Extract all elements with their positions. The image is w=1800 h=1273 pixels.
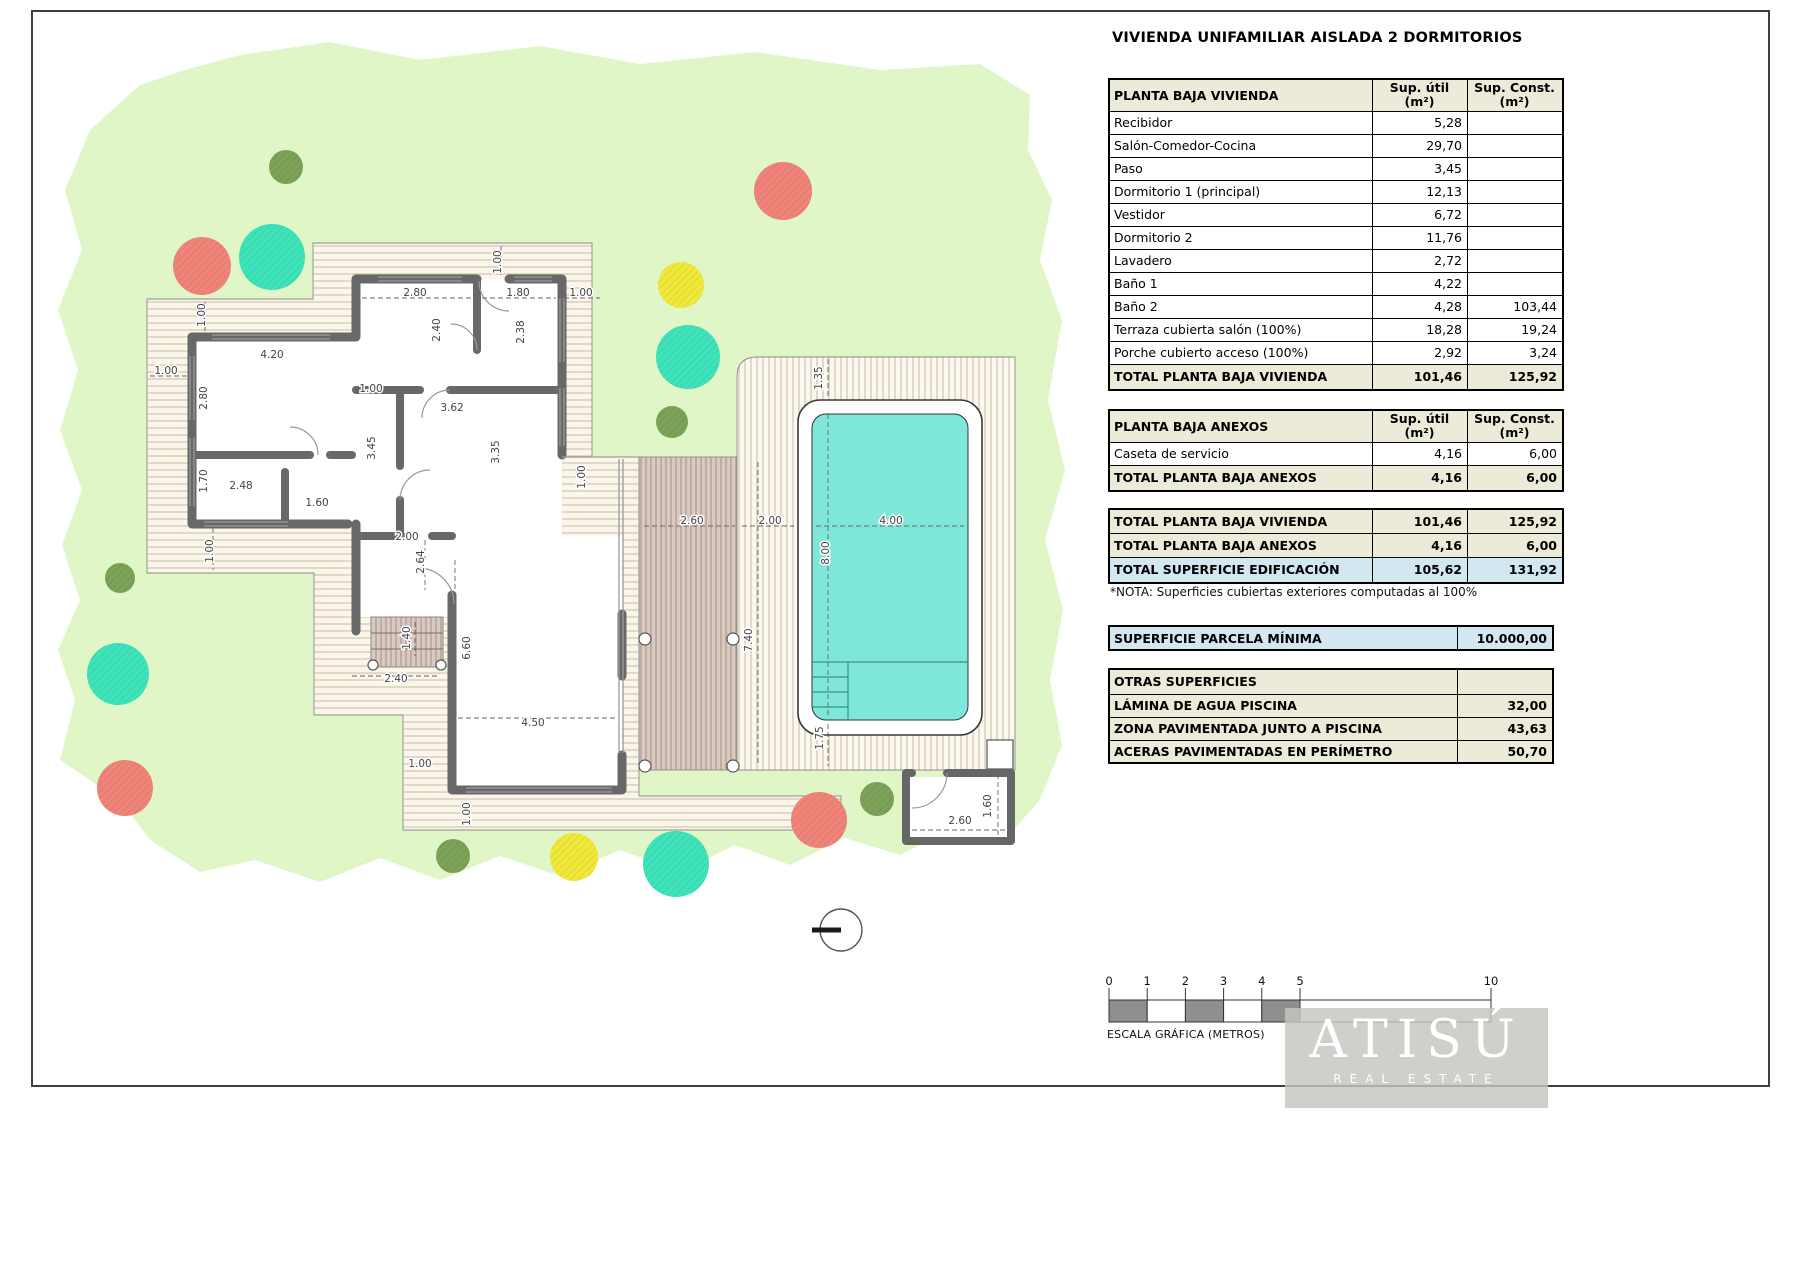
table-row: TOTAL PLANTA BAJA VIVIENDA101,46125,92 bbox=[1109, 509, 1563, 533]
table-cell: 50,70 bbox=[1458, 740, 1554, 763]
table-row: TOTAL SUPERFICIE EDIFICACIÓN105,62131,92 bbox=[1109, 557, 1563, 583]
table-planta-baja-vivienda: PLANTA BAJA VIVIENDASup. útil(m²)Sup. Co… bbox=[1108, 78, 1564, 391]
table-cell bbox=[1468, 249, 1564, 272]
table-cell: 4,16 bbox=[1373, 442, 1468, 465]
table-cell bbox=[1468, 111, 1564, 134]
table-cell: 131,92 bbox=[1468, 557, 1564, 583]
table-cell: SUPERFICIE PARCELA MÍNIMA bbox=[1109, 626, 1458, 650]
table-cell: 10.000,00 bbox=[1458, 626, 1554, 650]
table-row: TOTAL PLANTA BAJA VIVIENDA101,46125,92 bbox=[1109, 364, 1563, 390]
table-row: Porche cubierto acceso (100%)2,923,24 bbox=[1109, 341, 1563, 364]
table-row: Salón-Comedor-Cocina29,70 bbox=[1109, 134, 1563, 157]
table-cell: Lavadero bbox=[1109, 249, 1373, 272]
table-row: Recibidor5,28 bbox=[1109, 111, 1563, 134]
table-cell: LÁMINA DE AGUA PISCINA bbox=[1109, 694, 1458, 717]
table-cell: Sup. útil(m²) bbox=[1373, 410, 1468, 442]
table-cell: 125,92 bbox=[1468, 364, 1564, 390]
table-row: LÁMINA DE AGUA PISCINA32,00 bbox=[1109, 694, 1553, 717]
brand-logo: ATISÚ REAL ESTATE bbox=[1285, 1008, 1548, 1108]
table-row: Terraza cubierta salón (100%)18,2819,24 bbox=[1109, 318, 1563, 341]
table-row: PLANTA BAJA ANEXOSSup. útil(m²)Sup. Cons… bbox=[1109, 410, 1563, 442]
table-cell: PLANTA BAJA ANEXOS bbox=[1109, 410, 1373, 442]
table-cell bbox=[1468, 226, 1564, 249]
table-cell: 4,22 bbox=[1373, 272, 1468, 295]
table-otras-superficies: OTRAS SUPERFICIESLÁMINA DE AGUA PISCINA3… bbox=[1108, 668, 1554, 764]
table-totals-summary: TOTAL PLANTA BAJA VIVIENDA101,46125,92TO… bbox=[1108, 508, 1564, 584]
table-cell: 101,46 bbox=[1373, 509, 1468, 533]
table-cell: 6,00 bbox=[1468, 442, 1564, 465]
table-cell: OTRAS SUPERFICIES bbox=[1109, 669, 1458, 694]
table-cell: 105,62 bbox=[1373, 557, 1468, 583]
table-row: PLANTA BAJA VIVIENDASup. útil(m²)Sup. Co… bbox=[1109, 79, 1563, 111]
table-cell: Sup. Const.(m²) bbox=[1468, 79, 1564, 111]
table-cell: ACERAS PAVIMENTADAS EN PERÍMETRO bbox=[1109, 740, 1458, 763]
table-cell: Dormitorio 1 (principal) bbox=[1109, 180, 1373, 203]
table-cell: 6,00 bbox=[1468, 465, 1564, 491]
table-row: Baño 14,22 bbox=[1109, 272, 1563, 295]
table-cell: 101,46 bbox=[1373, 364, 1468, 390]
table-row: TOTAL PLANTA BAJA ANEXOS4,166,00 bbox=[1109, 533, 1563, 557]
table-cell bbox=[1468, 180, 1564, 203]
table-cell bbox=[1468, 203, 1564, 226]
table-row: Caseta de servicio4,166,00 bbox=[1109, 442, 1563, 465]
table-row: Paso3,45 bbox=[1109, 157, 1563, 180]
table-cell bbox=[1468, 134, 1564, 157]
scale-bar-tick-label: 3 bbox=[1220, 974, 1227, 988]
table-cell: 3,45 bbox=[1373, 157, 1468, 180]
table-row: OTRAS SUPERFICIES bbox=[1109, 669, 1553, 694]
table-cell: TOTAL PLANTA BAJA ANEXOS bbox=[1109, 465, 1373, 491]
table-superficie-parcela: SUPERFICIE PARCELA MÍNIMA10.000,00 bbox=[1108, 625, 1554, 651]
table-cell: 4,16 bbox=[1373, 465, 1468, 491]
table-cell: 12,13 bbox=[1373, 180, 1468, 203]
table-cell: TOTAL PLANTA BAJA VIVIENDA bbox=[1109, 364, 1373, 390]
table-cell: 6,72 bbox=[1373, 203, 1468, 226]
table-cell: Terraza cubierta salón (100%) bbox=[1109, 318, 1373, 341]
table-cell: Caseta de servicio bbox=[1109, 442, 1373, 465]
table-cell: Sup. Const.(m²) bbox=[1468, 410, 1564, 442]
scale-bar-tick-label: 10 bbox=[1484, 974, 1499, 988]
table-cell: PLANTA BAJA VIVIENDA bbox=[1109, 79, 1373, 111]
scale-bar-tick-label: 1 bbox=[1144, 974, 1151, 988]
table-row: Lavadero2,72 bbox=[1109, 249, 1563, 272]
table-cell bbox=[1468, 272, 1564, 295]
table-cell: Sup. útil(m²) bbox=[1373, 79, 1468, 111]
table-cell: Baño 2 bbox=[1109, 295, 1373, 318]
table-cell: 19,24 bbox=[1468, 318, 1564, 341]
table-cell: TOTAL PLANTA BAJA ANEXOS bbox=[1109, 533, 1373, 557]
sheet: 1.002.801.801.002.402.384.201.001.002.80… bbox=[0, 0, 1800, 1273]
brand-name: ATISÚ bbox=[1285, 1014, 1548, 1066]
table-cell bbox=[1458, 669, 1554, 694]
table-row: ACERAS PAVIMENTADAS EN PERÍMETRO50,70 bbox=[1109, 740, 1553, 763]
table-cell: TOTAL PLANTA BAJA VIVIENDA bbox=[1109, 509, 1373, 533]
table-row: SUPERFICIE PARCELA MÍNIMA10.000,00 bbox=[1109, 626, 1553, 650]
table-cell: Vestidor bbox=[1109, 203, 1373, 226]
table-cell: TOTAL SUPERFICIE EDIFICACIÓN bbox=[1109, 557, 1373, 583]
scale-bar-tick-label: 4 bbox=[1258, 974, 1265, 988]
table-cell: Porche cubierto acceso (100%) bbox=[1109, 341, 1373, 364]
scale-bar-tick-label: 0 bbox=[1105, 974, 1112, 988]
table-cell: Salón-Comedor-Cocina bbox=[1109, 134, 1373, 157]
table-row: Vestidor6,72 bbox=[1109, 203, 1563, 226]
table-cell: 125,92 bbox=[1468, 509, 1564, 533]
table-cell: 5,28 bbox=[1373, 111, 1468, 134]
table-cell: 29,70 bbox=[1373, 134, 1468, 157]
table-cell: 11,76 bbox=[1373, 226, 1468, 249]
table-cell: 18,28 bbox=[1373, 318, 1468, 341]
note-text: *NOTA: Superficies cubiertas exteriores … bbox=[1110, 585, 1477, 599]
brand-tagline: REAL ESTATE bbox=[1285, 1072, 1548, 1086]
table-cell: ZONA PAVIMENTADA JUNTO A PISCINA bbox=[1109, 717, 1458, 740]
table-cell: 32,00 bbox=[1458, 694, 1554, 717]
table-row: Dormitorio 211,76 bbox=[1109, 226, 1563, 249]
table-cell: 43,63 bbox=[1458, 717, 1554, 740]
table-cell bbox=[1468, 157, 1564, 180]
table-row: Dormitorio 1 (principal)12,13 bbox=[1109, 180, 1563, 203]
table-cell: 103,44 bbox=[1468, 295, 1564, 318]
table-row: ZONA PAVIMENTADA JUNTO A PISCINA43,63 bbox=[1109, 717, 1553, 740]
table-cell: Dormitorio 2 bbox=[1109, 226, 1373, 249]
table-cell: 6,00 bbox=[1468, 533, 1564, 557]
scale-bar-label: ESCALA GRÁFICA (METROS) bbox=[1107, 1028, 1265, 1041]
page-title: VIVIENDA UNIFAMILIAR AISLADA 2 DORMITORI… bbox=[1112, 30, 1523, 46]
scale-bar-tick-label: 2 bbox=[1182, 974, 1189, 988]
table-cell: 2,92 bbox=[1373, 341, 1468, 364]
table-cell: 2,72 bbox=[1373, 249, 1468, 272]
table-cell: Recibidor bbox=[1109, 111, 1373, 134]
table-cell: Baño 1 bbox=[1109, 272, 1373, 295]
table-cell: 3,24 bbox=[1468, 341, 1564, 364]
table-row: TOTAL PLANTA BAJA ANEXOS4,166,00 bbox=[1109, 465, 1563, 491]
scale-bar-tick-label: 5 bbox=[1296, 974, 1303, 988]
table-cell: Paso bbox=[1109, 157, 1373, 180]
table-cell: 4,16 bbox=[1373, 533, 1468, 557]
table-planta-baja-anexos: PLANTA BAJA ANEXOSSup. útil(m²)Sup. Cons… bbox=[1108, 409, 1564, 492]
table-row: Baño 24,28103,44 bbox=[1109, 295, 1563, 318]
table-cell: 4,28 bbox=[1373, 295, 1468, 318]
